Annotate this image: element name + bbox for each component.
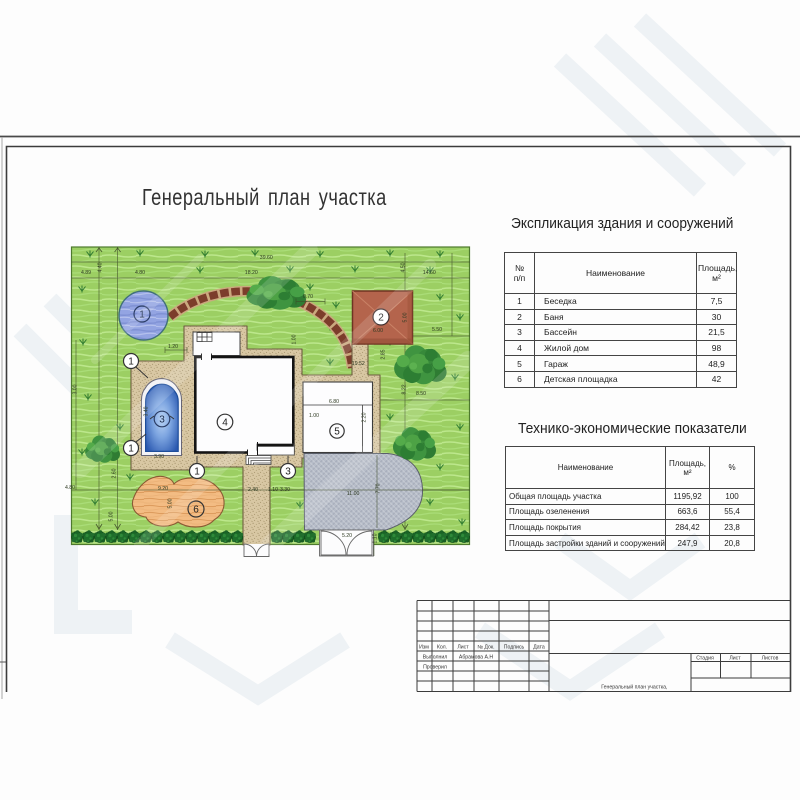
svg-text:6: 6	[193, 505, 199, 516]
svg-text:1: 1	[194, 467, 200, 478]
svg-text:4: 4	[222, 418, 228, 429]
svg-text:1: 1	[128, 444, 134, 455]
svg-text:1: 1	[128, 357, 134, 368]
svg-text:3: 3	[159, 415, 165, 426]
svg-text:3: 3	[285, 467, 291, 478]
svg-text:5: 5	[334, 427, 340, 438]
